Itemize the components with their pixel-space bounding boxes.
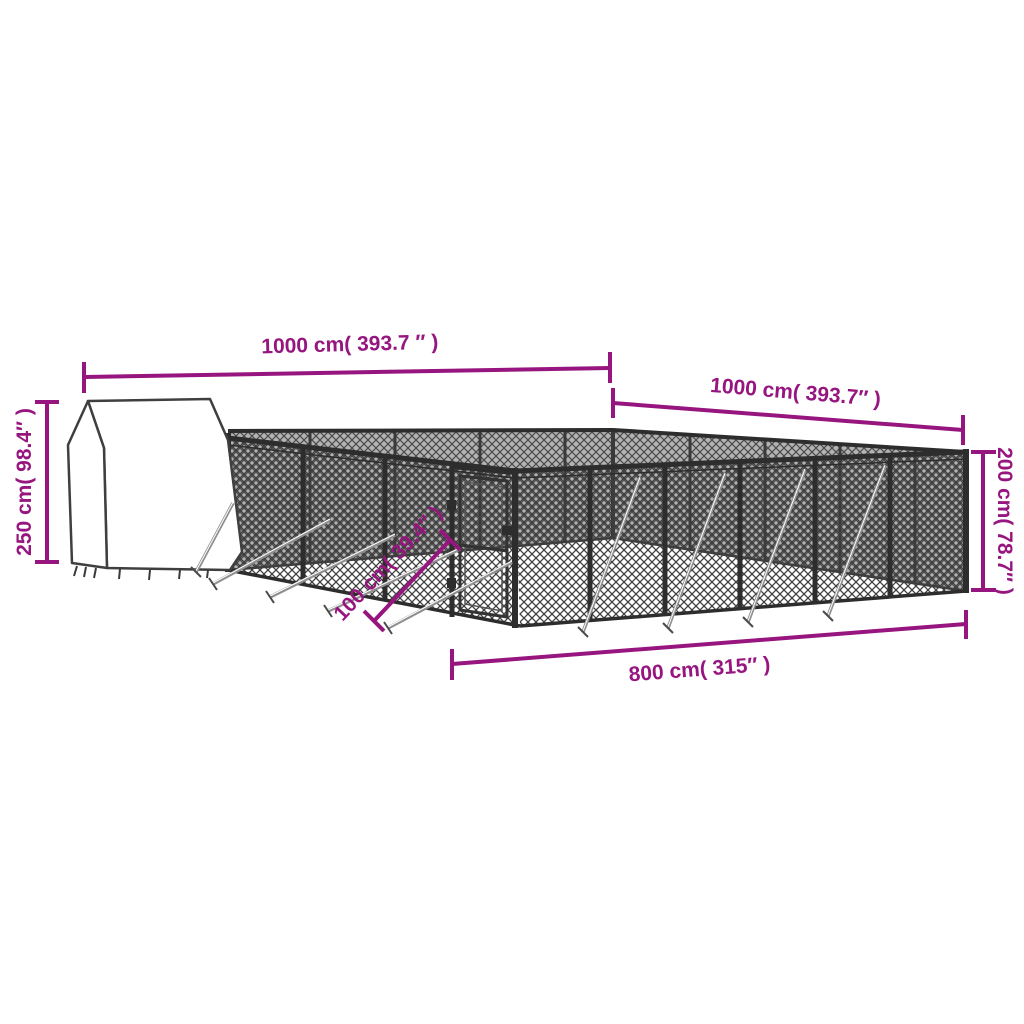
diagram-canvas: 1000 cm( 393.7 ″ ) 1000 cm( 393.7″ ) 250… (0, 0, 1024, 1024)
dimension-left-label: 250 cm( 98.4″ ) (13, 408, 36, 556)
gate-hinge-top (447, 500, 456, 510)
dimension-top-right-label: 1000 cm( 393.7″ ) (709, 374, 881, 411)
dimension-top-left: 1000 cm( 393.7 ″ ) (84, 331, 610, 393)
dimension-right-label: 200 cm( 78.7″ ) (993, 447, 1016, 595)
dimension-right: 200 cm( 78.7″ ) (971, 447, 1016, 595)
dog-house (68, 399, 242, 580)
gate-hinge-bottom (447, 578, 456, 588)
dimension-left: 250 cm( 98.4″ ) (13, 402, 59, 562)
house-roof-side (88, 399, 242, 570)
dimension-bottom-label: 800 cm( 315″ ) (628, 653, 771, 687)
dimension-top-left-label: 1000 cm( 393.7 ″ ) (261, 331, 439, 359)
kennel-dimension-diagram: 1000 cm( 393.7 ″ ) 1000 cm( 393.7″ ) 250… (0, 0, 1024, 1024)
gate-latch (502, 526, 512, 535)
fence-enclosure (209, 430, 966, 637)
